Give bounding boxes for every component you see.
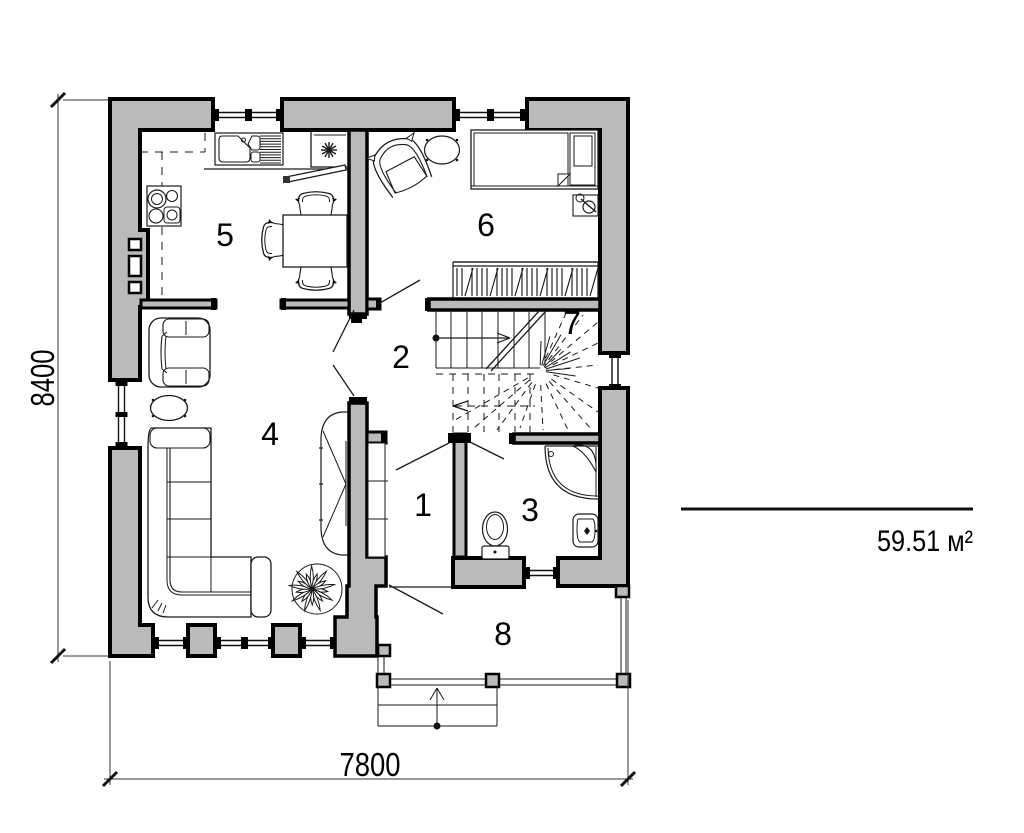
svg-text:3: 3 xyxy=(521,492,539,528)
svg-text:7800: 7800 xyxy=(340,746,401,783)
svg-text:7: 7 xyxy=(563,305,581,341)
svg-text:1: 1 xyxy=(414,487,432,523)
svg-text:5: 5 xyxy=(216,217,234,253)
svg-text:59.51 м²: 59.51 м² xyxy=(877,525,973,558)
svg-text:8: 8 xyxy=(494,616,512,652)
svg-text:4: 4 xyxy=(261,416,279,452)
svg-text:8400: 8400 xyxy=(24,350,61,407)
svg-text:2: 2 xyxy=(392,339,410,375)
svg-text:6: 6 xyxy=(477,207,495,243)
